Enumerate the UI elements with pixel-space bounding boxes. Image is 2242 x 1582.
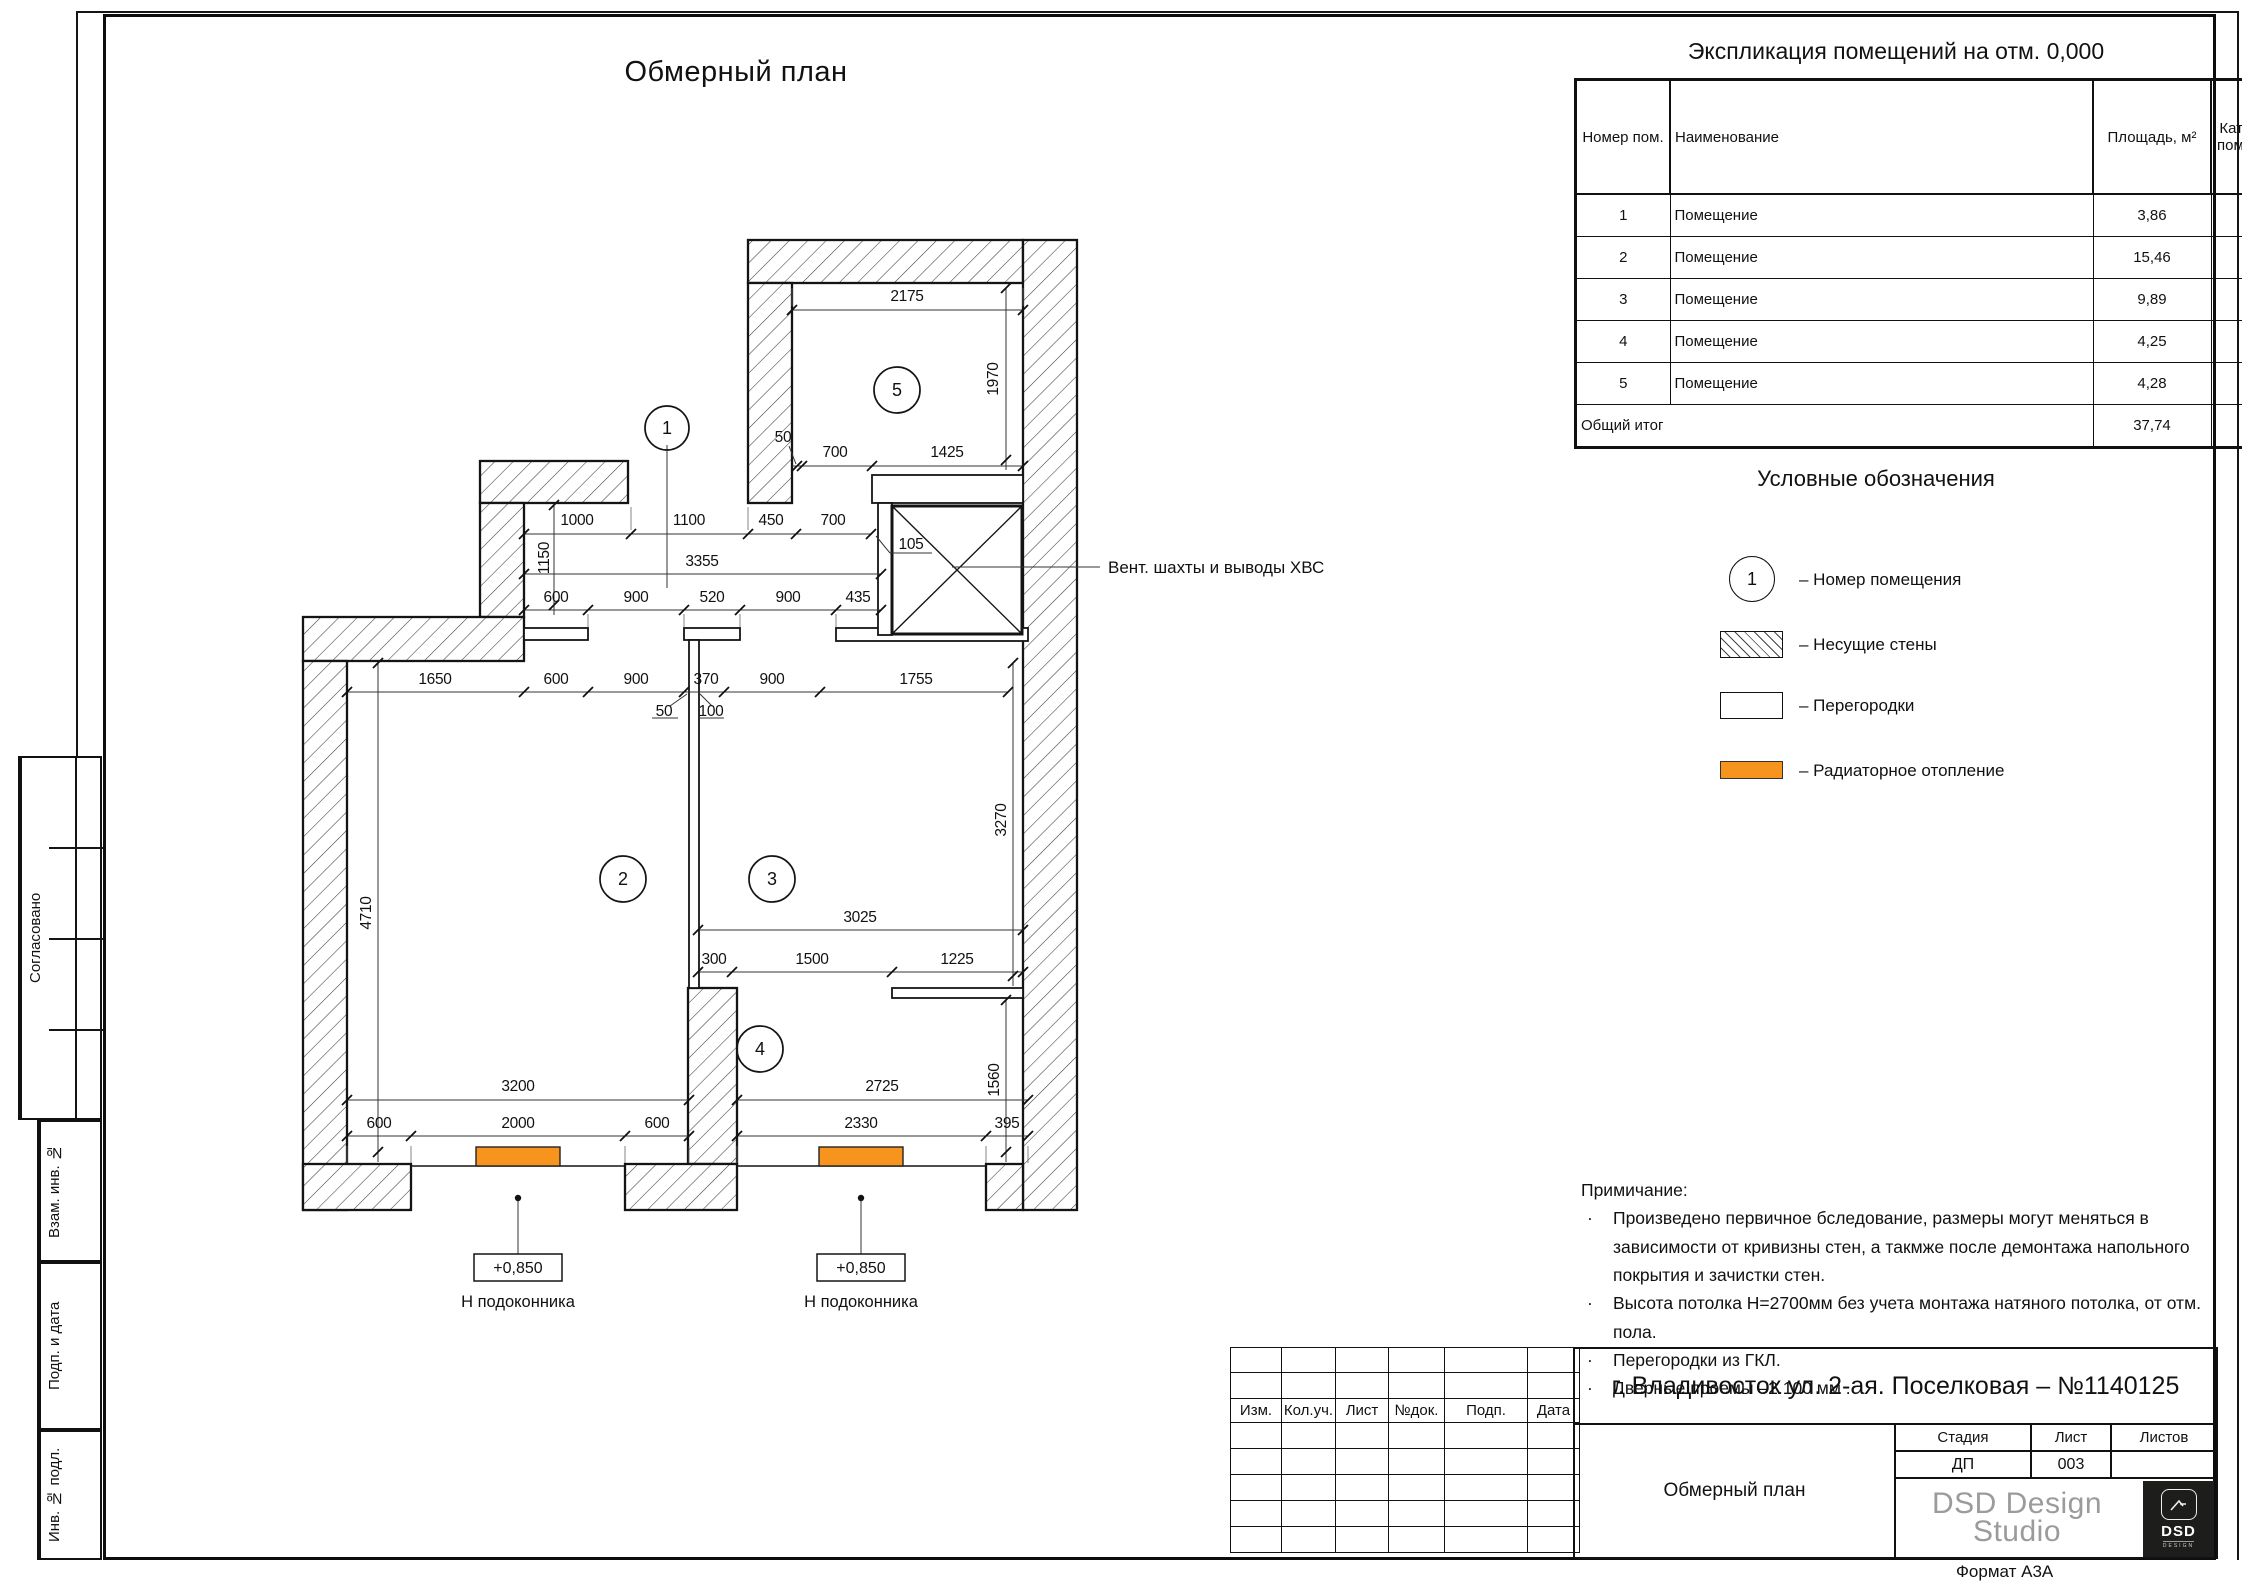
stamp-sheet-value-cell: 003 xyxy=(2030,1450,2112,1479)
cell-cat xyxy=(2211,321,2242,363)
table-row: 1 Помещение 3,86 xyxy=(1576,194,2242,237)
legend-radiator-icon xyxy=(1720,761,1783,779)
rev-col-data: Дата xyxy=(1528,1399,1580,1423)
col-header-name: Наименование xyxy=(1670,80,2093,195)
drawing-sheet: Обмерный план xyxy=(0,0,2242,1582)
cell-name: Помещение xyxy=(1670,279,2093,321)
revision-table: Изм. Кол.уч. Лист №док. Подп. Дата xyxy=(1230,1347,1580,1553)
legend-room-number-icon: 1 xyxy=(1729,556,1775,602)
cell-area: 4,28 xyxy=(2093,363,2211,405)
cell-name: Помещение xyxy=(1670,237,2093,279)
note-item: ·Произведено первичное бследование, разм… xyxy=(1581,1204,2229,1289)
cell-cat xyxy=(2211,194,2242,237)
page-title: Обмерный план xyxy=(536,56,936,89)
grid-line xyxy=(49,938,104,940)
grid-line xyxy=(49,1029,104,1031)
legend-item-label: – Несущие стены xyxy=(1799,635,1937,655)
rev-col-podp: Подп. xyxy=(1445,1399,1528,1423)
table-row: 5 Помещение 4,28 xyxy=(1576,363,2242,405)
side-label-approved: Согласовано xyxy=(20,758,49,1118)
col-header-cat: Кат. пом. xyxy=(2211,80,2242,195)
cell-area: 9,89 xyxy=(2093,279,2211,321)
legend-title: Условные обозначения xyxy=(1676,466,2076,492)
outer-border-top xyxy=(76,11,2238,13)
explication-table: Номер пом. Наименование Площадь, м² Кат.… xyxy=(1574,78,2242,449)
col-header-number: Номер пом. xyxy=(1576,80,1671,195)
stamp-stage-value-cell: ДП xyxy=(1894,1450,2032,1479)
rev-col-dok: №док. xyxy=(1389,1399,1445,1423)
cell-num: 3 xyxy=(1576,279,1671,321)
dsd-logo-subtext: DESIGN xyxy=(2163,1541,2194,1549)
sheet-label: Лист xyxy=(2055,1429,2088,1446)
dsd-logo-text: DSD xyxy=(2161,1523,2196,1540)
logo-line1: DSD Design xyxy=(1932,1490,2102,1519)
sheets-label: Листов xyxy=(2140,1429,2189,1446)
cell-num: 4 xyxy=(1576,321,1671,363)
legend-item-label: – Радиаторное отопление xyxy=(1799,761,2004,781)
total-label: Общий итог xyxy=(1576,405,2094,448)
stamp-object-cell: г. Владивосток ул. 2-ая. Поселковая – №1… xyxy=(1573,1347,2218,1425)
table-row: 3 Помещение 9,89 xyxy=(1576,279,2242,321)
cell-area: 3,86 xyxy=(2093,194,2211,237)
cell-name: Помещение xyxy=(1670,194,2093,237)
side-label-podp: Подп. и дата xyxy=(39,1264,68,1428)
total-area: 37,74 xyxy=(2093,405,2211,448)
inv-podl-stamp: Инв. № подл. xyxy=(37,1430,102,1560)
table-total-row: Общий итог 37,74 xyxy=(1576,405,2242,448)
note-text: Произведено первичное бследование, разме… xyxy=(1613,1204,2229,1289)
bullet: · xyxy=(1581,1289,1613,1346)
col-header-area: Площадь, м² xyxy=(2093,80,2211,195)
explication-title: Экспликация помещений на отм. 0,000 xyxy=(1574,38,2218,65)
legend-room-number-value: 1 xyxy=(1747,569,1757,590)
stamp-doc-title: Обмерный план xyxy=(1664,1480,1806,1502)
cell-area: 4,25 xyxy=(2093,321,2211,363)
legend-item-label: – Номер помещения xyxy=(1799,570,1961,590)
vzam-inv-stamp: Взам. инв. № xyxy=(37,1120,102,1262)
cell-num: 2 xyxy=(1576,237,1671,279)
logo-line2: Studio xyxy=(1932,1518,2102,1547)
cell-num: 5 xyxy=(1576,363,1671,405)
format-label: Формат А3А xyxy=(1956,1562,2053,1582)
cell-area: 15,46 xyxy=(2093,237,2211,279)
side-label-vzam: Взам. инв. № xyxy=(39,1122,68,1260)
dsd-logo-icon xyxy=(2161,1489,2197,1520)
cell-cat xyxy=(2211,279,2242,321)
logo-text: DSD Design Studio xyxy=(1932,1490,2102,1547)
table-row: 2 Помещение 15,46 xyxy=(1576,237,2242,279)
stage-label: Стадия xyxy=(1937,1429,1988,1446)
bullet: · xyxy=(1581,1204,1613,1289)
stamp-sheets-value-cell xyxy=(2110,1450,2218,1479)
stage-value: ДП xyxy=(1952,1456,1974,1474)
outer-border-left xyxy=(76,11,78,756)
legend-bearing-wall-icon xyxy=(1720,631,1783,658)
grid-line xyxy=(49,847,104,849)
note-text: Высота потолка Н=2700мм без учета монтаж… xyxy=(1613,1289,2229,1346)
stamp-object: г. Владивосток ул. 2-ая. Поселковая – №1… xyxy=(1612,1372,2180,1401)
legend-item-label: – Перегородки xyxy=(1799,696,1914,716)
legend-partition-icon xyxy=(1720,692,1783,719)
cell-cat xyxy=(2211,237,2242,279)
total-cat xyxy=(2211,405,2242,448)
notes-title: Примичание: xyxy=(1581,1176,2229,1204)
approval-stamp: Согласовано xyxy=(18,756,102,1120)
stamp-doc-title-cell: Обмерный план xyxy=(1573,1423,1896,1559)
stamp-sheets-label-cell: Листов xyxy=(2110,1423,2218,1452)
rev-col-izm: Изм. xyxy=(1231,1399,1282,1423)
rev-col-list: Лист xyxy=(1336,1399,1389,1423)
podp-data-stamp: Подп. и дата xyxy=(37,1262,102,1430)
note-item: ·Высота потолка Н=2700мм без учета монта… xyxy=(1581,1289,2229,1346)
cell-cat xyxy=(2211,363,2242,405)
rev-col-koluch: Кол.уч. xyxy=(1282,1399,1336,1423)
cell-num: 1 xyxy=(1576,194,1671,237)
stamp-stage-label-cell: Стадия xyxy=(1894,1423,2032,1452)
dsd-logo: DSD DESIGN xyxy=(2143,1481,2214,1557)
cell-name: Помещение xyxy=(1670,321,2093,363)
stamp-sheet-label-cell: Лист xyxy=(2030,1423,2112,1452)
sheet-number: 003 xyxy=(2058,1456,2085,1474)
cell-name: Помещение xyxy=(1670,363,2093,405)
side-label-inv: Инв. № подл. xyxy=(39,1432,68,1558)
table-row: 4 Помещение 4,25 xyxy=(1576,321,2242,363)
